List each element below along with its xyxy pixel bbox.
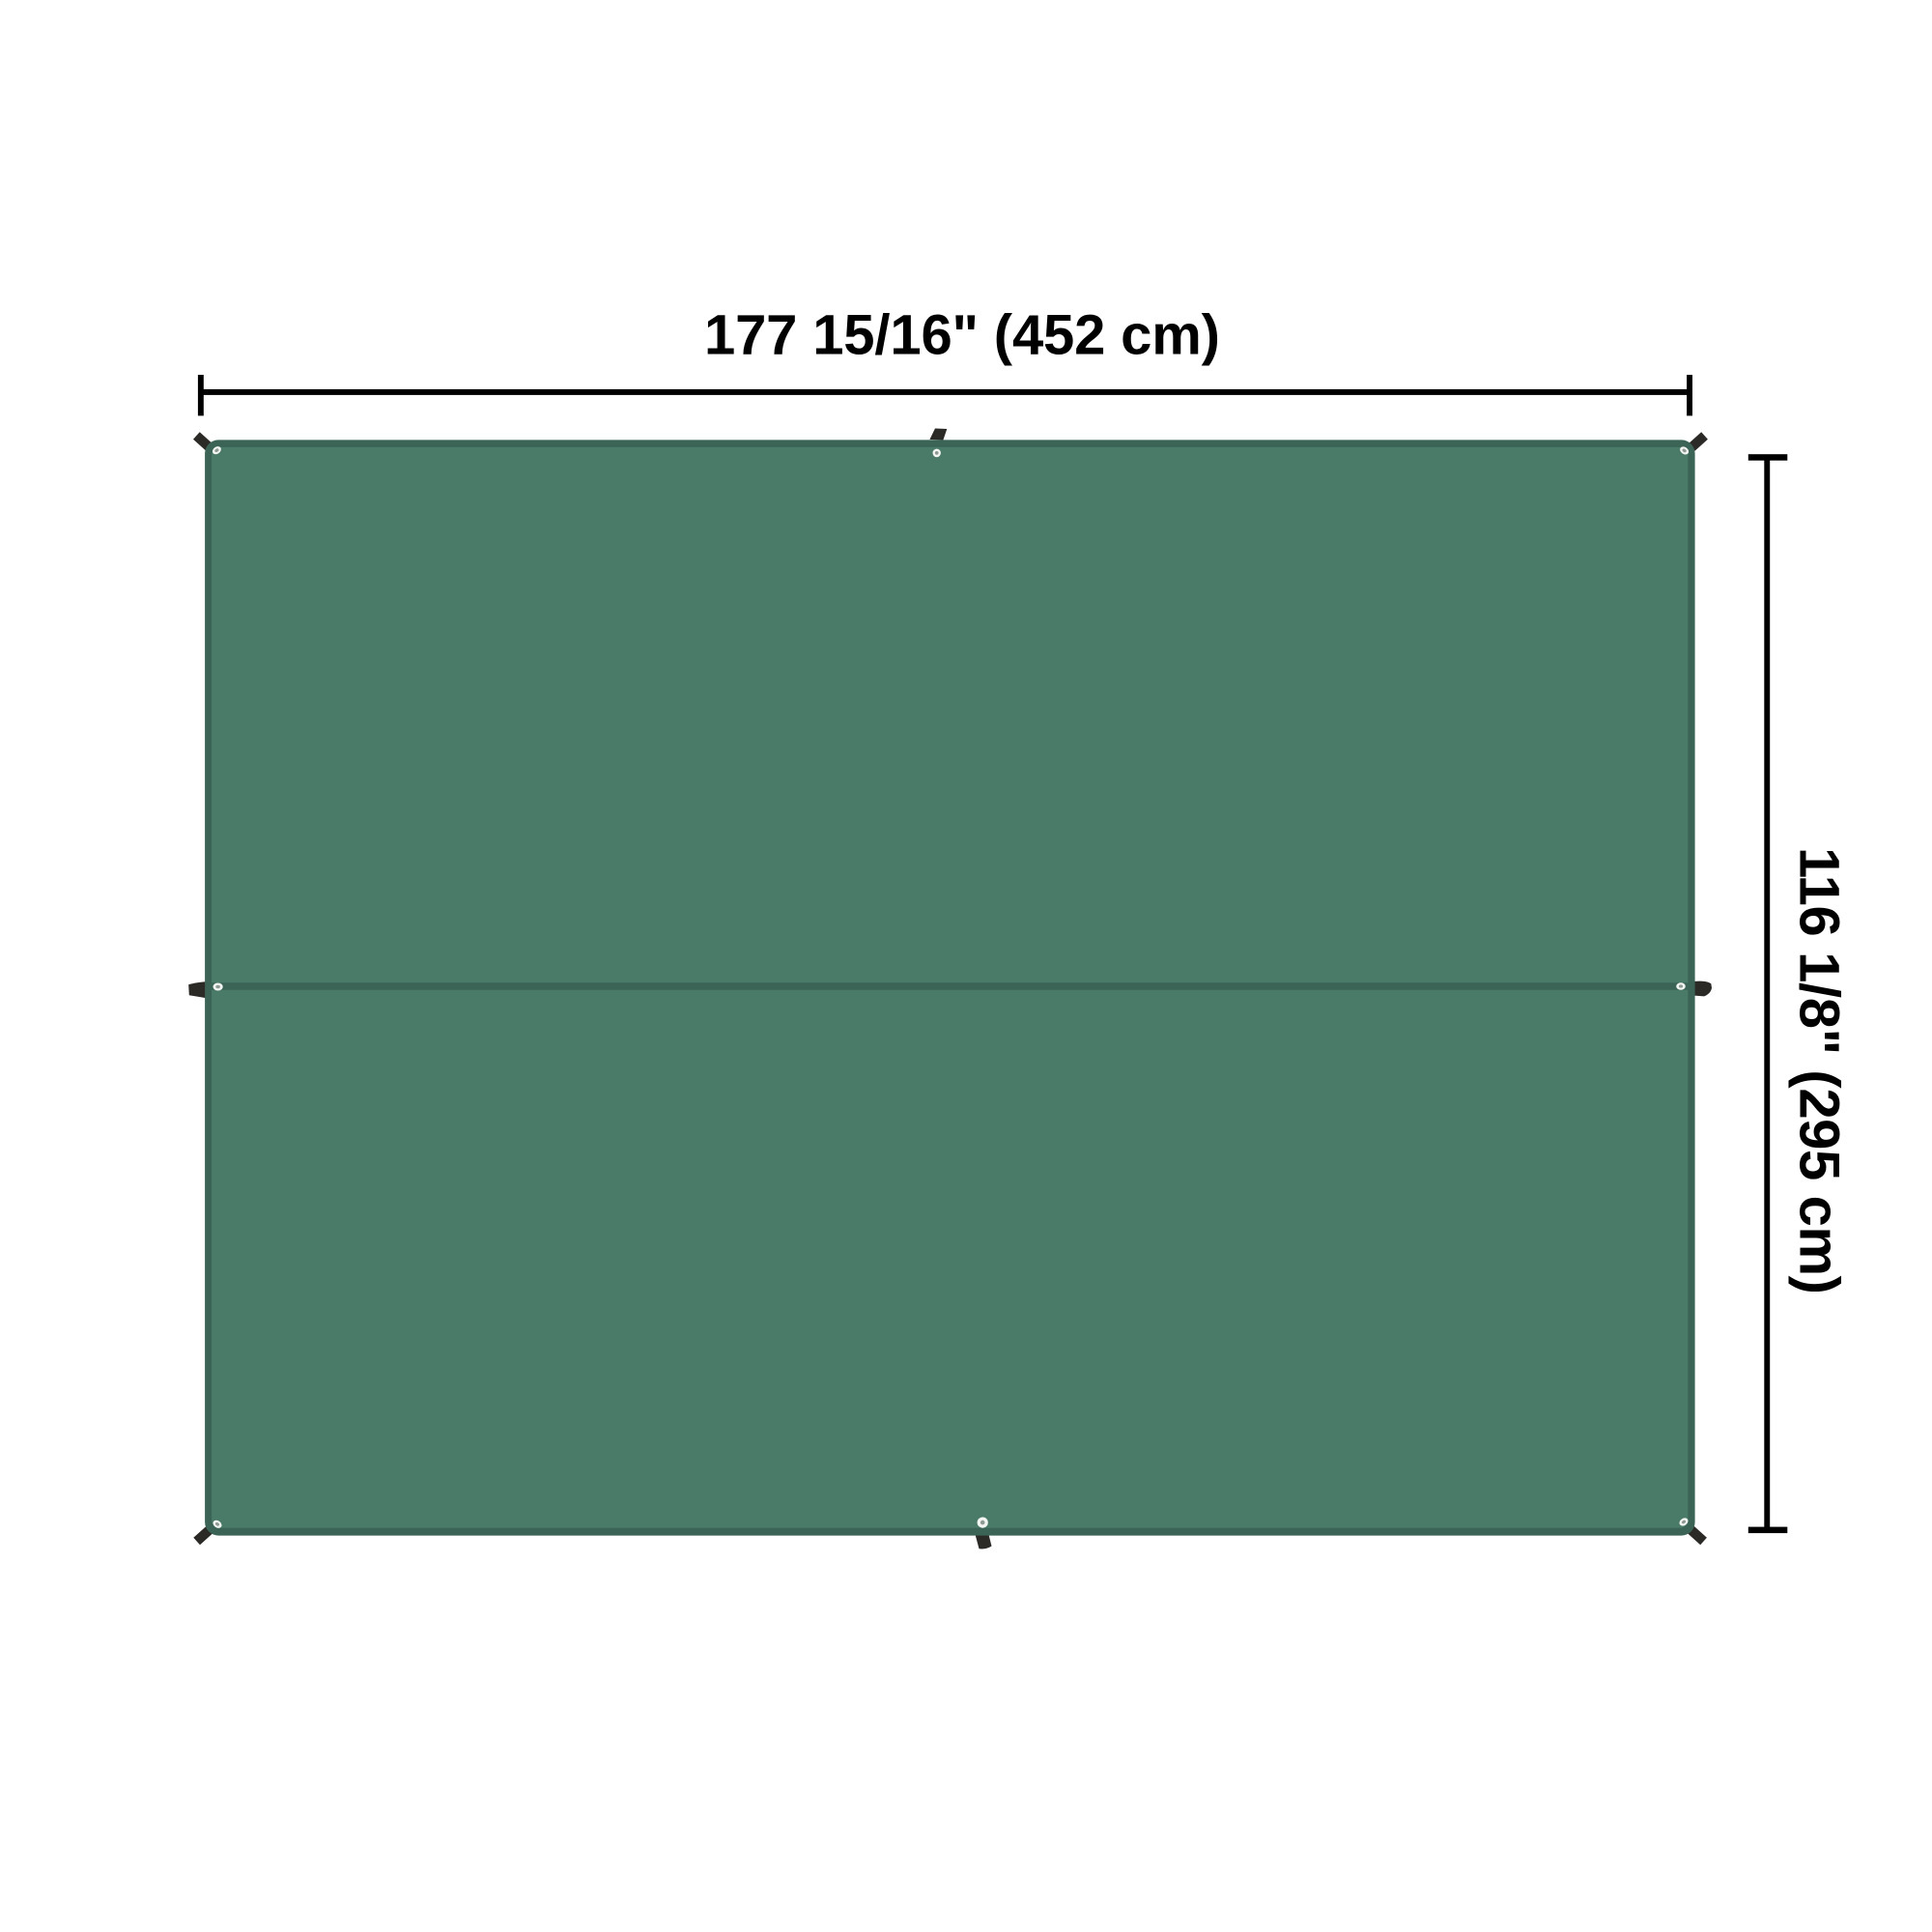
svg-text:177 15/16" (452 cm): 177 15/16" (452 cm) xyxy=(704,304,1220,367)
svg-text:116 1/8" (295 cm): 116 1/8" (295 cm) xyxy=(1788,847,1851,1294)
